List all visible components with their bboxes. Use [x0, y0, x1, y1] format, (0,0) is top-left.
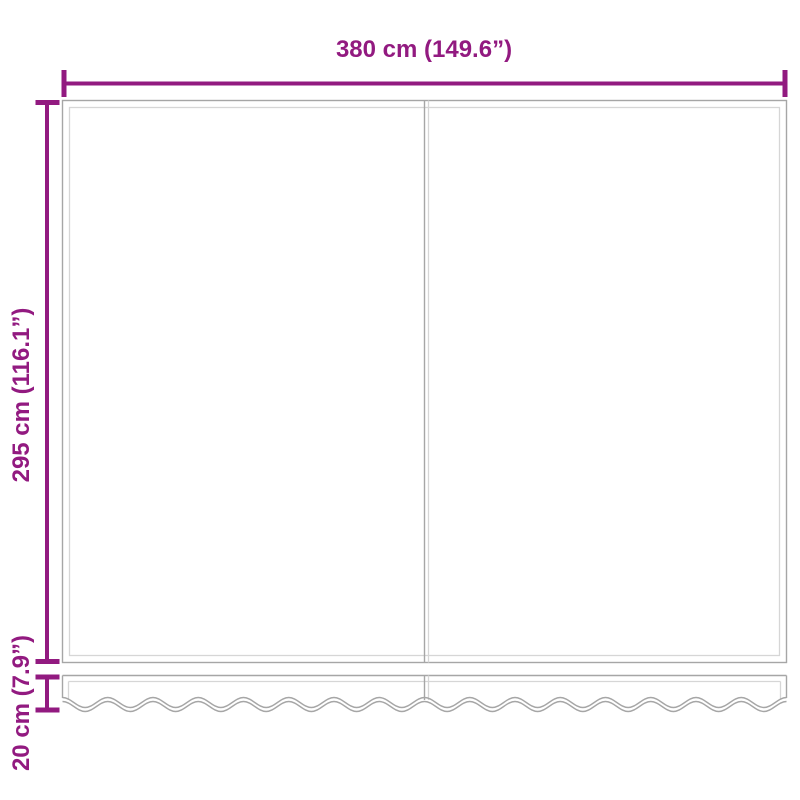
width-dimension	[64, 70, 785, 97]
height-dimension-label: 295 cm (116.1”)	[8, 308, 36, 483]
valance-strip	[63, 676, 787, 712]
awning-fabric-dimension-diagram: 380 cm (149.6”) 295 cm (116.1”) 20 cm (7…	[0, 0, 800, 800]
height-dimension	[36, 103, 60, 662]
diagram-graphics	[0, 0, 800, 800]
main-fabric-panel	[63, 101, 787, 663]
width-dimension-label: 380 cm (149.6”)	[336, 36, 512, 64]
valance-height-dimension-label: 20 cm (7.9”)	[8, 635, 36, 771]
valance-height-dimension	[36, 677, 60, 710]
